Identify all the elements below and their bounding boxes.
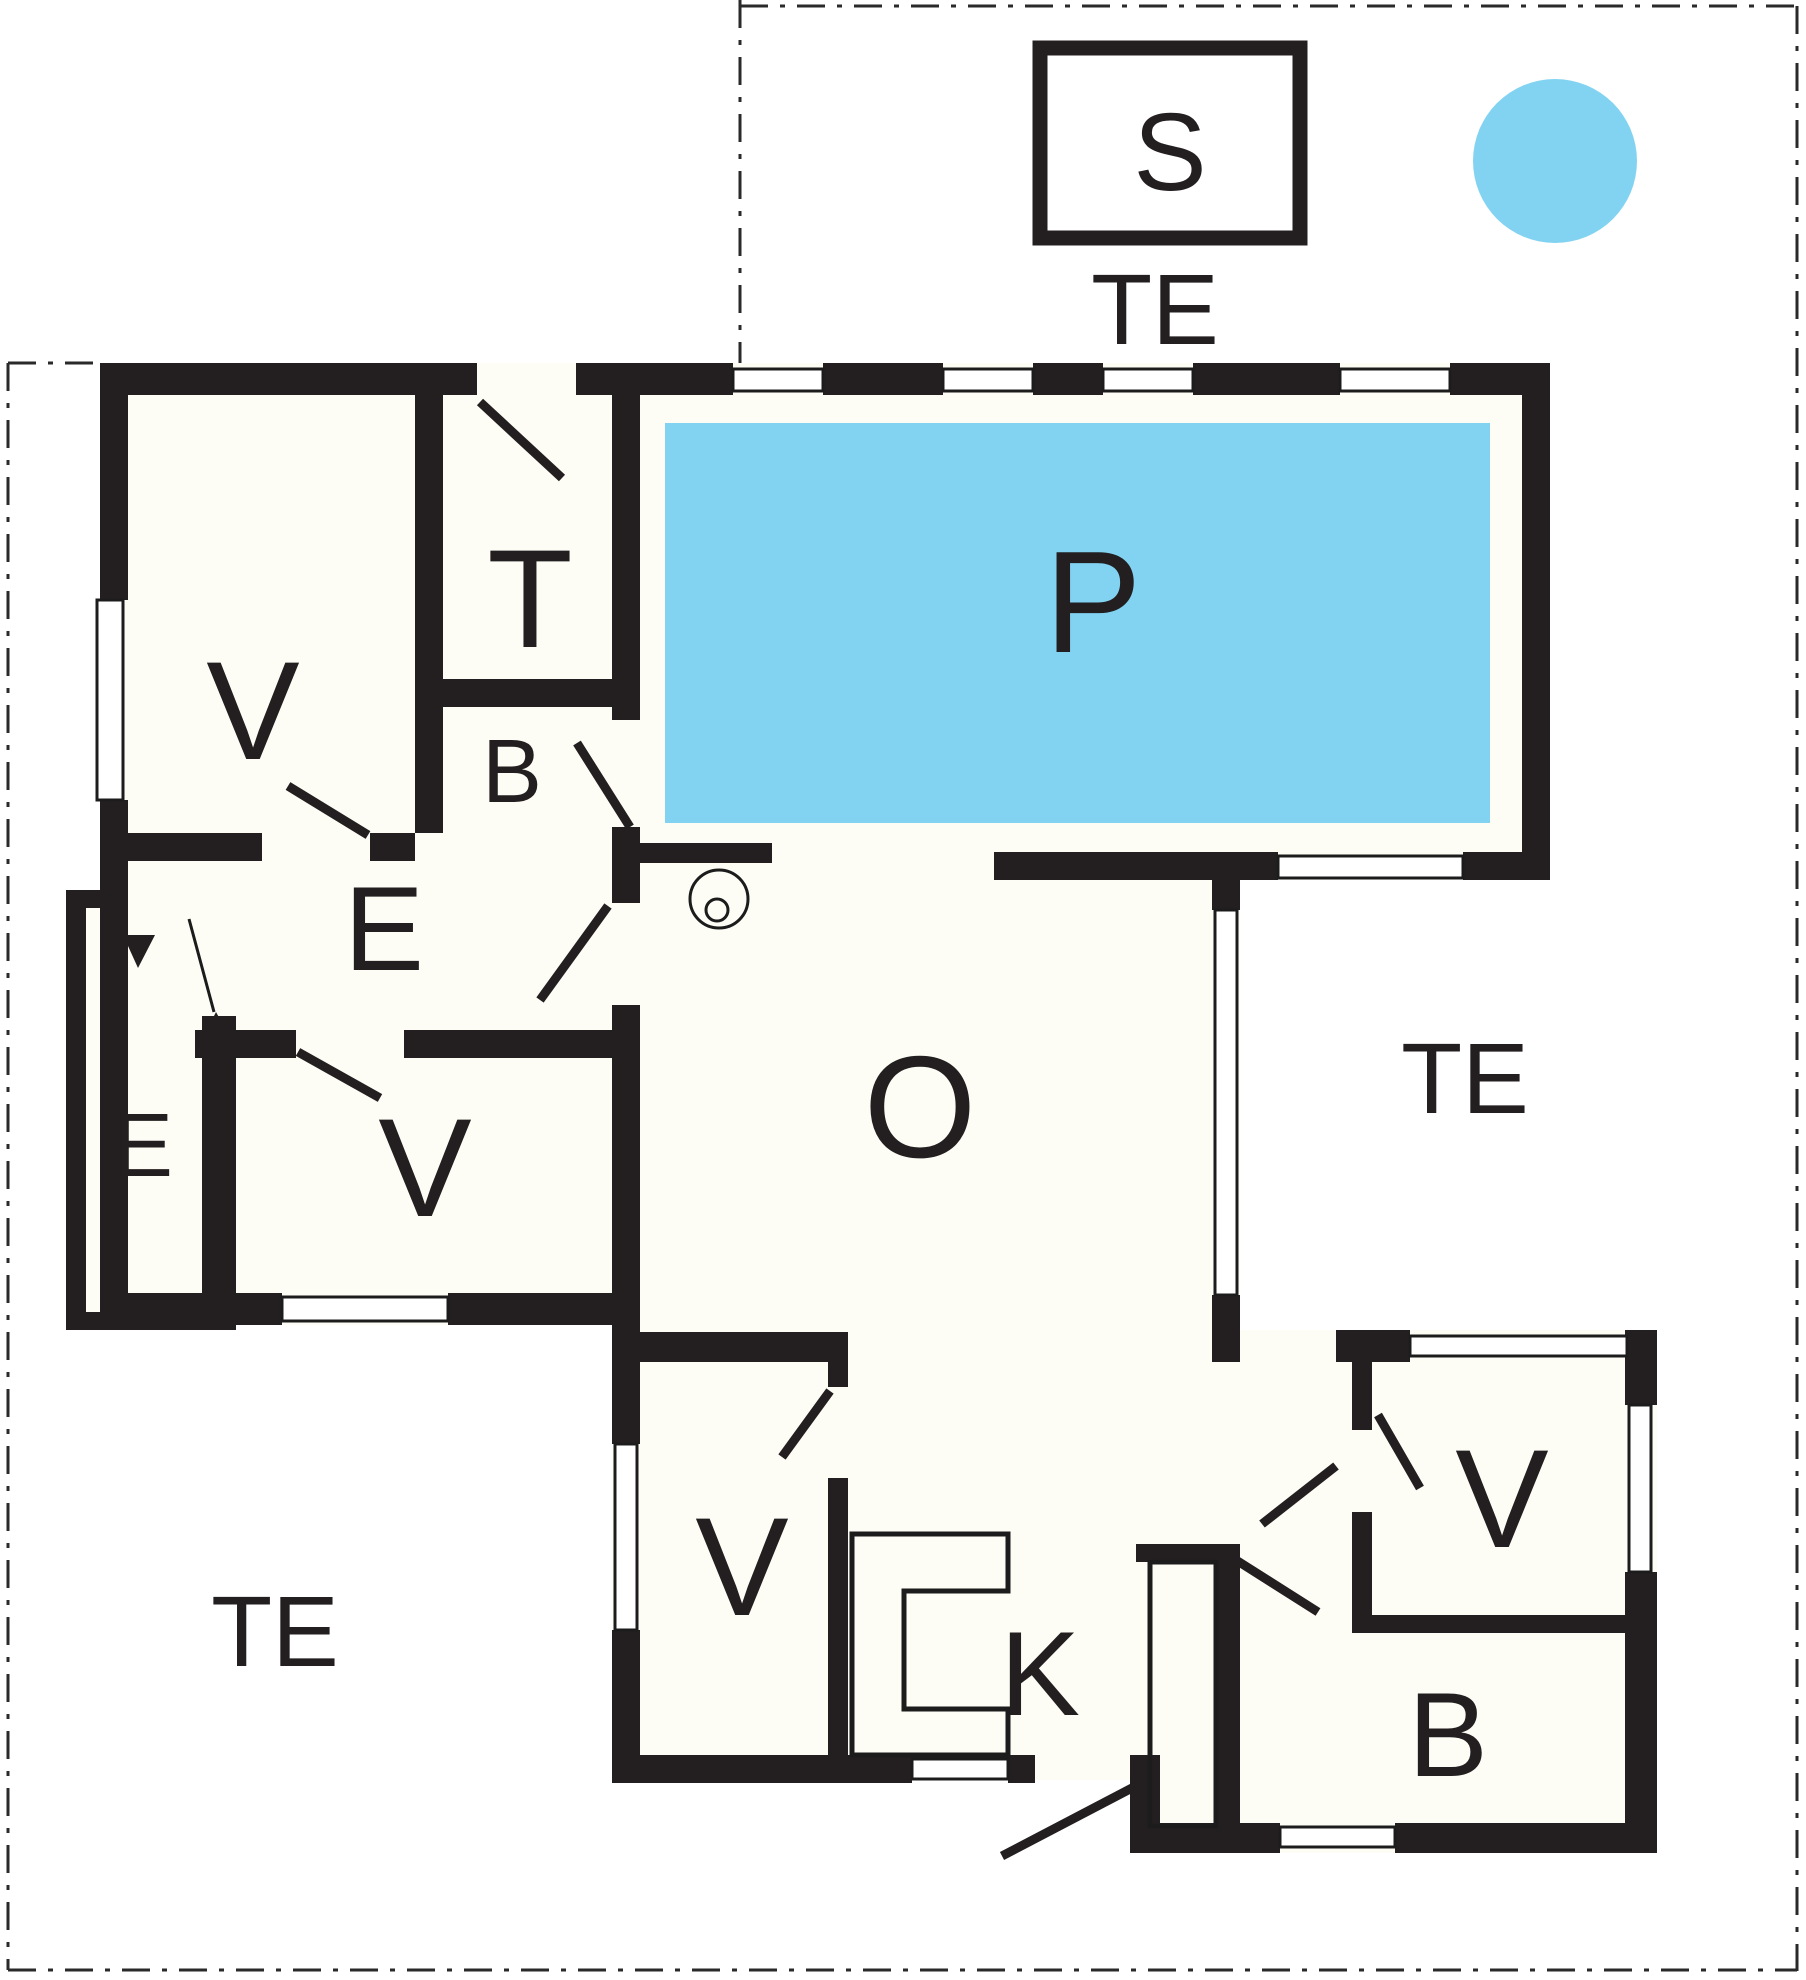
window	[97, 600, 123, 800]
wall-porch	[66, 1312, 236, 1330]
wall-porch	[66, 890, 86, 1330]
floor-plan: S TE P V T B E E V O TE TE V K V B	[0, 0, 1806, 1980]
wall	[415, 395, 443, 833]
label-bedroom-bottom-center: V	[695, 1488, 788, 1645]
wall	[1212, 1330, 1240, 1362]
wall	[1625, 1330, 1657, 1405]
wall	[828, 1478, 848, 1755]
wall	[1625, 1572, 1657, 1853]
annex	[1040, 48, 1637, 243]
window	[912, 1759, 1008, 1779]
wall	[1352, 1512, 1372, 1633]
wall	[128, 833, 262, 861]
label-pool: P	[1045, 521, 1142, 683]
wall	[1352, 1615, 1625, 1633]
label-bath-top: B	[482, 722, 542, 822]
label-bath-bottom-right: B	[1408, 1668, 1488, 1802]
wall	[1352, 1362, 1372, 1430]
label-entrance-hall: E	[344, 862, 424, 996]
wall	[612, 827, 640, 903]
wall-porch	[202, 1016, 236, 1312]
wall	[1136, 1544, 1240, 1562]
label-bedroom-bottom-right: V	[1455, 1420, 1548, 1577]
wall	[640, 363, 733, 395]
label-sauna: S	[1133, 91, 1206, 214]
label-toilet: T	[487, 520, 573, 677]
wall	[443, 679, 612, 707]
wall	[640, 843, 772, 863]
wall	[612, 1325, 640, 1444]
wall	[612, 1755, 912, 1783]
wall	[576, 363, 612, 395]
label-bedroom-top-left: V	[206, 632, 299, 789]
window	[1103, 369, 1193, 391]
wall	[1216, 1562, 1240, 1828]
wall	[448, 1293, 640, 1325]
window	[1629, 1405, 1651, 1572]
wall	[1395, 1823, 1657, 1853]
window	[1280, 1827, 1395, 1847]
wall	[404, 1030, 640, 1058]
window	[1278, 856, 1463, 878]
wall	[1522, 363, 1550, 880]
label-bedroom-mid-left: V	[378, 1089, 471, 1246]
hot-tub	[1473, 79, 1637, 243]
label-terrace-top: TE	[1091, 254, 1219, 366]
wall	[100, 800, 128, 1325]
window	[733, 369, 823, 391]
wall	[823, 363, 943, 395]
window	[282, 1297, 448, 1321]
wall	[370, 833, 415, 861]
label-living-room: O	[864, 1026, 977, 1188]
wall	[1008, 1755, 1035, 1783]
label-terrace-right: TE	[1401, 1023, 1529, 1135]
wall	[100, 395, 128, 600]
window	[1340, 369, 1450, 391]
wall	[100, 363, 477, 395]
wall	[994, 852, 1278, 880]
wall	[828, 1332, 848, 1387]
wall	[1212, 880, 1240, 910]
wall	[1336, 1330, 1410, 1362]
window	[943, 369, 1033, 391]
wall	[1193, 363, 1340, 395]
door-swing-main-entrance	[1002, 1788, 1132, 1856]
floor-plan-page: S TE P V T B E E V O TE TE V K V B	[0, 0, 1806, 1980]
label-kitchen: K	[1000, 1607, 1080, 1741]
wall	[1463, 852, 1550, 880]
label-entry-porch: E	[113, 1096, 173, 1196]
wall	[640, 1332, 830, 1362]
wall	[612, 363, 640, 720]
label-terrace-bottom-left: TE	[211, 1576, 339, 1688]
window	[1215, 910, 1237, 1295]
window	[1410, 1336, 1627, 1356]
window	[615, 1444, 637, 1630]
wall	[1033, 363, 1103, 395]
